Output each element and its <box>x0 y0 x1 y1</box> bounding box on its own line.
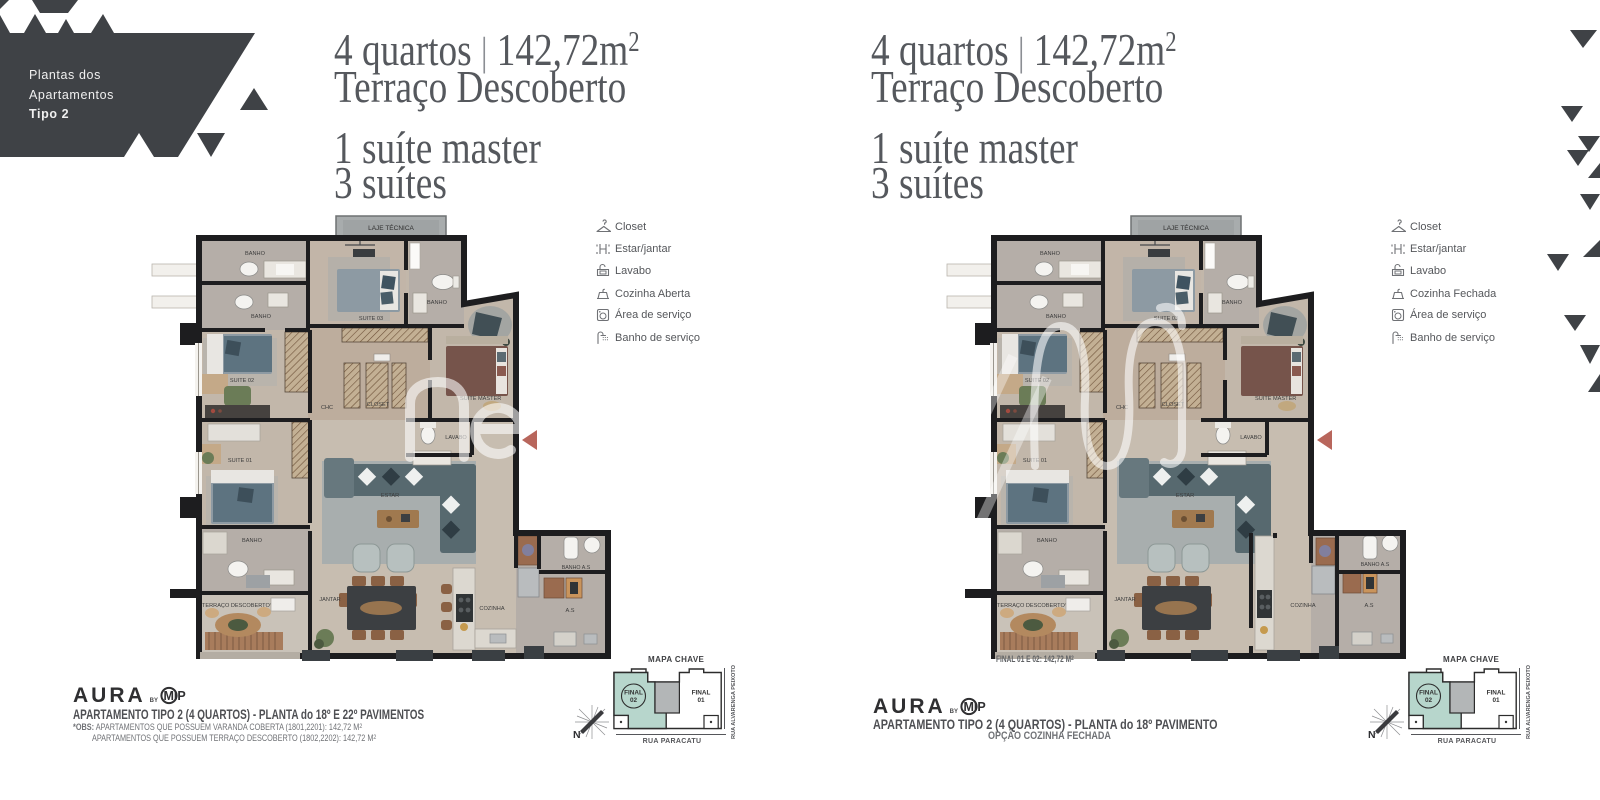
svg-text:N: N <box>573 729 581 741</box>
svg-text:BANHO: BANHO <box>1046 314 1067 320</box>
svg-text:SUITE 03: SUITE 03 <box>359 316 383 322</box>
svg-text:RUA ALVARENGA PEIXOTO: RUA ALVARENGA PEIXOTO <box>731 664 737 739</box>
svg-text:LAVABO: LAVABO <box>1240 435 1262 441</box>
svg-text:SUITE 01: SUITE 01 <box>228 458 252 464</box>
svg-text:LAJE TÉCNICA: LAJE TÉCNICA <box>1163 223 1209 232</box>
svg-text:MIP: MIP <box>164 689 186 703</box>
svg-text:01: 01 <box>1492 697 1500 704</box>
svg-text:BANHO A.S: BANHO A.S <box>1361 562 1390 568</box>
svg-text:A.S: A.S <box>1364 603 1373 609</box>
svg-text:BANHO: BANHO <box>1222 300 1243 306</box>
svg-text:BANHO: BANHO <box>242 538 263 544</box>
svg-text:RUA PARACATU: RUA PARACATU <box>1438 738 1497 745</box>
svg-text:BANHO: BANHO <box>245 251 266 257</box>
svg-text:CHC: CHC <box>321 405 333 411</box>
svg-text:A.S: A.S <box>565 608 574 614</box>
svg-text:COZINHA: COZINHA <box>479 606 504 612</box>
svg-text:MIP: MIP <box>964 700 986 714</box>
svg-text:BANHO: BANHO <box>1037 538 1058 544</box>
svg-text:02: 02 <box>1425 697 1433 704</box>
svg-text:MAPA CHAVE: MAPA CHAVE <box>1443 655 1500 664</box>
svg-text:COZINHA: COZINHA <box>1290 603 1315 609</box>
svg-text:01: 01 <box>697 697 705 704</box>
svg-text:FINAL: FINAL <box>1487 690 1506 697</box>
svg-text:RUA ALVARENGA PEIXOTO: RUA ALVARENGA PEIXOTO <box>1526 664 1532 739</box>
svg-text:JANTAR: JANTAR <box>319 597 340 603</box>
svg-text:JANTAR: JANTAR <box>1114 597 1135 603</box>
svg-text:02: 02 <box>630 697 638 704</box>
svg-text:FINAL: FINAL <box>1419 690 1438 697</box>
svg-text:FINAL: FINAL <box>624 690 643 697</box>
svg-text:ESTAR: ESTAR <box>1176 493 1194 499</box>
svg-text:SUITE 02: SUITE 02 <box>230 378 254 384</box>
svg-text:BANHO: BANHO <box>251 314 272 320</box>
svg-text:LAJE TÉCNICA: LAJE TÉCNICA <box>368 223 414 232</box>
svg-text:MAPA CHAVE: MAPA CHAVE <box>648 655 705 664</box>
svg-text:BANHO: BANHO <box>1040 251 1061 257</box>
svg-text:CLOSET: CLOSET <box>367 402 390 408</box>
svg-text:BANHO: BANHO <box>427 300 448 306</box>
svg-text:N: N <box>1368 729 1376 741</box>
svg-text:ESTAR: ESTAR <box>381 493 399 499</box>
svg-text:FINAL: FINAL <box>692 690 711 697</box>
svg-text:SUITE MASTER: SUITE MASTER <box>1255 396 1296 402</box>
svg-text:RUA PARACATU: RUA PARACATU <box>643 738 702 745</box>
